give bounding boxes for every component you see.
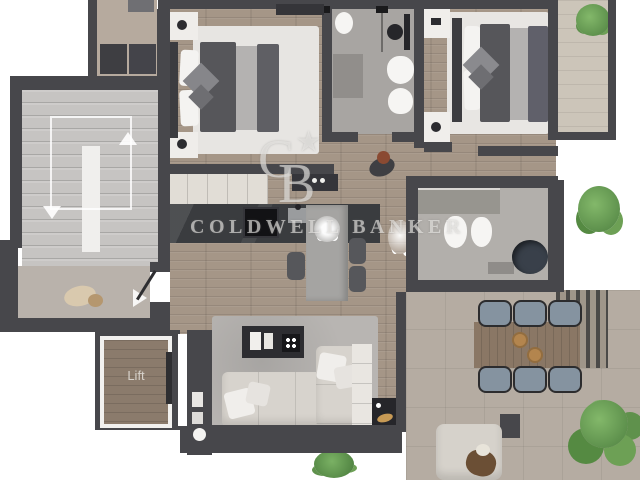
wall-segment [548,0,558,140]
shower-glass [381,12,383,52]
wall-segment [406,188,418,292]
plant-below-living [314,450,354,478]
tall-cabinet [352,344,372,428]
placemat [527,347,543,363]
dining-chair [349,266,366,292]
floor-vase [193,428,206,441]
mug [320,178,325,183]
wall-segment [414,0,424,148]
dining-chair [349,238,366,264]
wall-segment [478,146,558,156]
arrow-down-icon [43,206,61,219]
lamp-icon [177,20,187,30]
wall-segment [548,132,616,140]
watermark-monogram-b: B [278,156,315,212]
outdoor-side-table [500,414,520,438]
duvet [236,46,257,130]
hall-wardrobe [418,190,500,214]
shower-column [404,14,410,50]
tv-wall [180,425,402,453]
wall-segment [406,176,558,188]
person-walking-head [377,151,390,164]
wall-segment [396,292,406,432]
sofa-pillow [245,381,271,407]
person-on-sofa-head [476,444,490,456]
decor-box [282,334,300,352]
bidet [471,217,492,247]
wall-segment [548,180,564,292]
bathtub-basin [512,240,548,274]
wall-segment [10,76,162,90]
watermark-brand-text: COLDWELL BANKER [190,217,465,237]
sink [335,12,353,34]
art-frame [250,332,261,350]
wall-segment [88,0,97,82]
floor-plan-render: Lift C B ★ COLDWELL BANKER [0,0,640,480]
dining-chair [287,252,305,280]
arrow-up-icon [119,132,137,145]
exterior [182,453,406,480]
wardrobe-unit [129,44,156,74]
wall-segment [608,0,616,140]
kitchen-cabinets [168,172,268,204]
outdoor-chair [513,366,547,393]
wall-segment [406,280,564,292]
wall-segment [158,0,558,9]
wardrobe-unit [100,44,127,74]
outdoor-chair [478,366,512,393]
duvet [257,44,279,132]
outdoor-chair [548,366,582,393]
console-cup [376,403,381,408]
lift-door-leaf [166,352,172,404]
bath-mat [488,262,514,274]
outdoor-chair [513,300,547,327]
toilet [387,56,414,84]
headboard [452,18,462,122]
duvet [528,26,548,122]
placemat [512,332,528,348]
outdoor-chair [478,300,512,327]
wall-sign [192,412,203,424]
door-frame-tick [376,6,388,13]
wall-segment [324,132,358,142]
duvet [510,28,528,120]
lamp-icon [431,122,441,132]
lift-label: Lift [104,368,168,383]
side-garden-plant [578,186,620,232]
balcony-plant [576,4,610,36]
wall-sign [192,392,203,407]
built-in-wardrobe [276,4,324,15]
shower-head-icon [387,24,403,40]
outdoor-chair [548,300,582,327]
wall-segment [322,0,332,142]
watermark-star-icon: ★ [296,128,321,156]
dog-head [88,294,103,307]
storage-box [128,0,154,12]
stair-direction-path [50,116,132,210]
bidet [388,88,413,114]
wall-segment [150,302,170,332]
lamp-icon [177,139,187,149]
wall-segment [424,142,452,152]
bath-mat [333,54,363,98]
wall-segment [0,240,18,332]
corridor-gap [178,334,187,426]
outdoor-dining-table [474,322,580,368]
wall-segment [158,9,170,265]
terrace-plant-large [580,400,628,448]
phone-icon [431,18,441,25]
wall-segment [10,76,22,248]
art-frame [264,333,273,349]
exterior [0,430,182,480]
